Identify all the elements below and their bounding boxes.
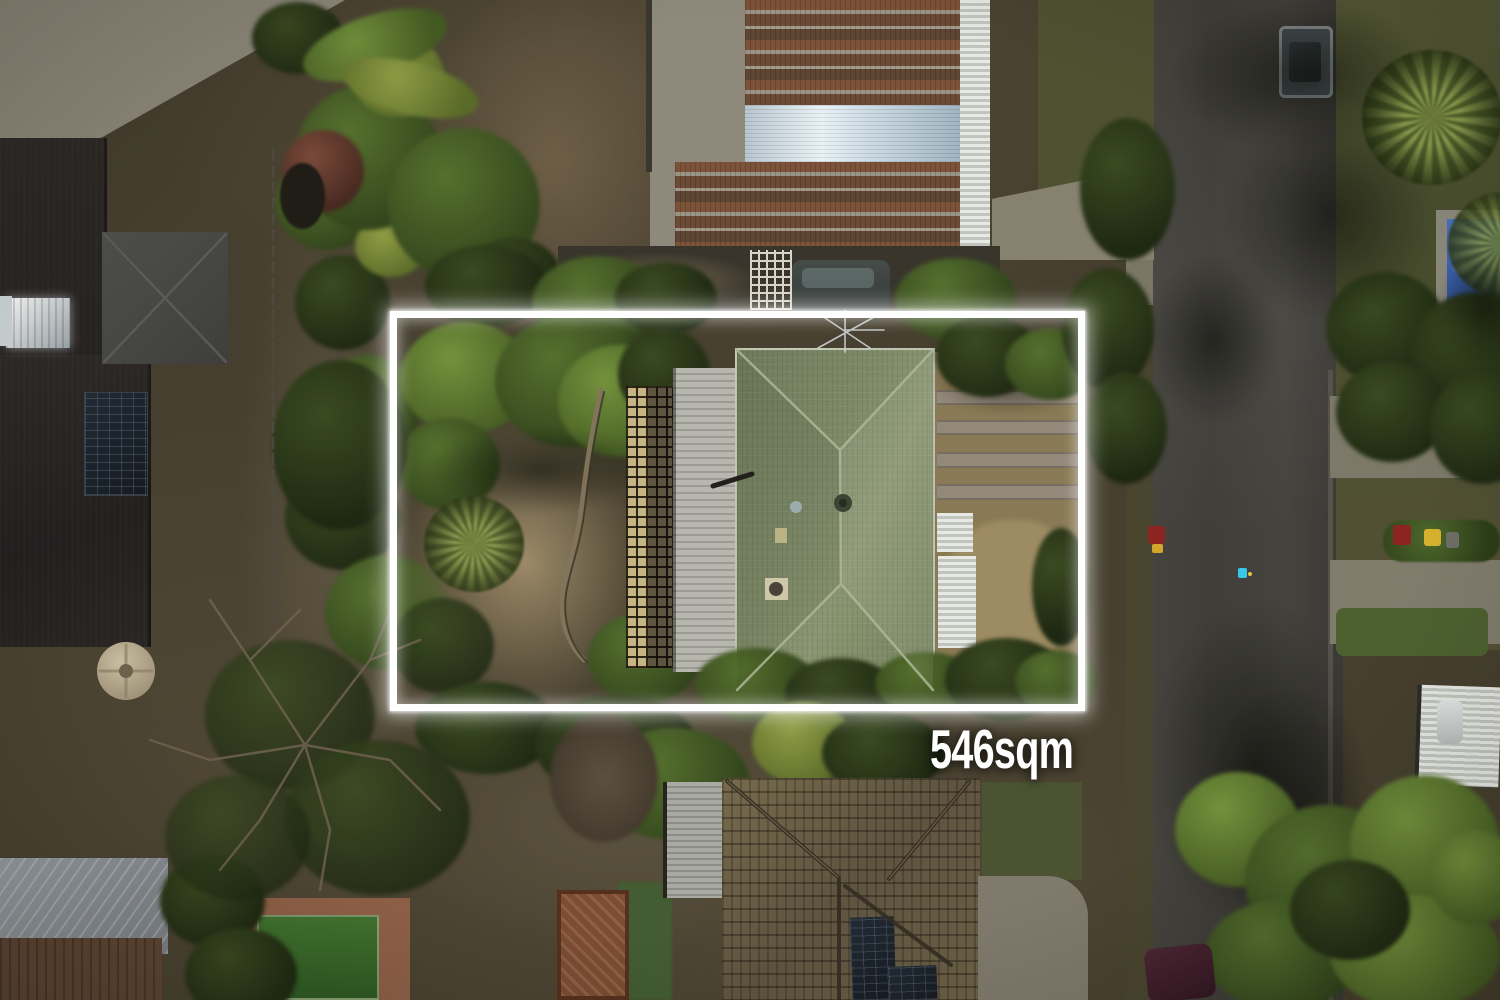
left-house-annex-hip-roof xyxy=(102,232,228,364)
lawn-right xyxy=(1336,608,1488,656)
wheelie-bin-left-yellow xyxy=(1152,544,1163,553)
concrete-right-of-bottom-house xyxy=(978,876,1088,1000)
maroon-car-bottom xyxy=(1143,943,1216,1000)
aerial-property-photo: 546sqm xyxy=(0,0,1500,1000)
north-building-rust-roof-upper xyxy=(745,0,963,105)
white-lattice-fence xyxy=(750,250,792,310)
tree-canopy xyxy=(272,360,407,530)
skylight-reflection xyxy=(6,298,70,348)
tree-canopy xyxy=(1080,118,1175,260)
small-object-on-road xyxy=(1238,568,1247,578)
tree-canopy xyxy=(1085,372,1167,484)
large-tree-canopy xyxy=(1290,860,1410,960)
wheelie-bin-left-red xyxy=(1148,526,1165,544)
north-building-silver-band xyxy=(745,105,963,162)
solar-hot-water-strip xyxy=(0,296,12,346)
north-building-white-ridge-cap xyxy=(960,0,990,250)
bottom-house-metal-section xyxy=(663,782,723,898)
wheelie-bin-right-red xyxy=(1393,525,1411,545)
area-label: 546sqm xyxy=(930,722,1073,777)
car-windshield xyxy=(802,268,874,288)
rusty-shed-roof xyxy=(557,890,629,1000)
property-boundary-outline xyxy=(390,311,1085,711)
garden-pond xyxy=(280,163,325,229)
small-object-on-road-dot xyxy=(1248,572,1252,576)
sparse-tree-canopy xyxy=(165,775,310,900)
dirt-circle-backyard xyxy=(550,714,658,842)
tree-shadow-on-road xyxy=(1148,255,1278,425)
grass-right-of-bottom-house xyxy=(982,782,1082,880)
north-building xyxy=(650,0,990,260)
north-building-rust-roof-lower xyxy=(675,162,963,250)
solar-panel-array-left xyxy=(84,392,148,496)
white-car-under-carport xyxy=(1437,700,1463,744)
wheelie-bin-right-grey xyxy=(1446,532,1459,548)
north-building-left-edge xyxy=(646,0,652,172)
parked-car-dark xyxy=(792,260,890,312)
solar-panel-array-bottom-2 xyxy=(888,965,937,1000)
water-tank xyxy=(97,642,155,700)
wheelie-bin-right-yellow xyxy=(1424,529,1441,546)
terracotta-roof-bottom-left xyxy=(0,938,162,1000)
